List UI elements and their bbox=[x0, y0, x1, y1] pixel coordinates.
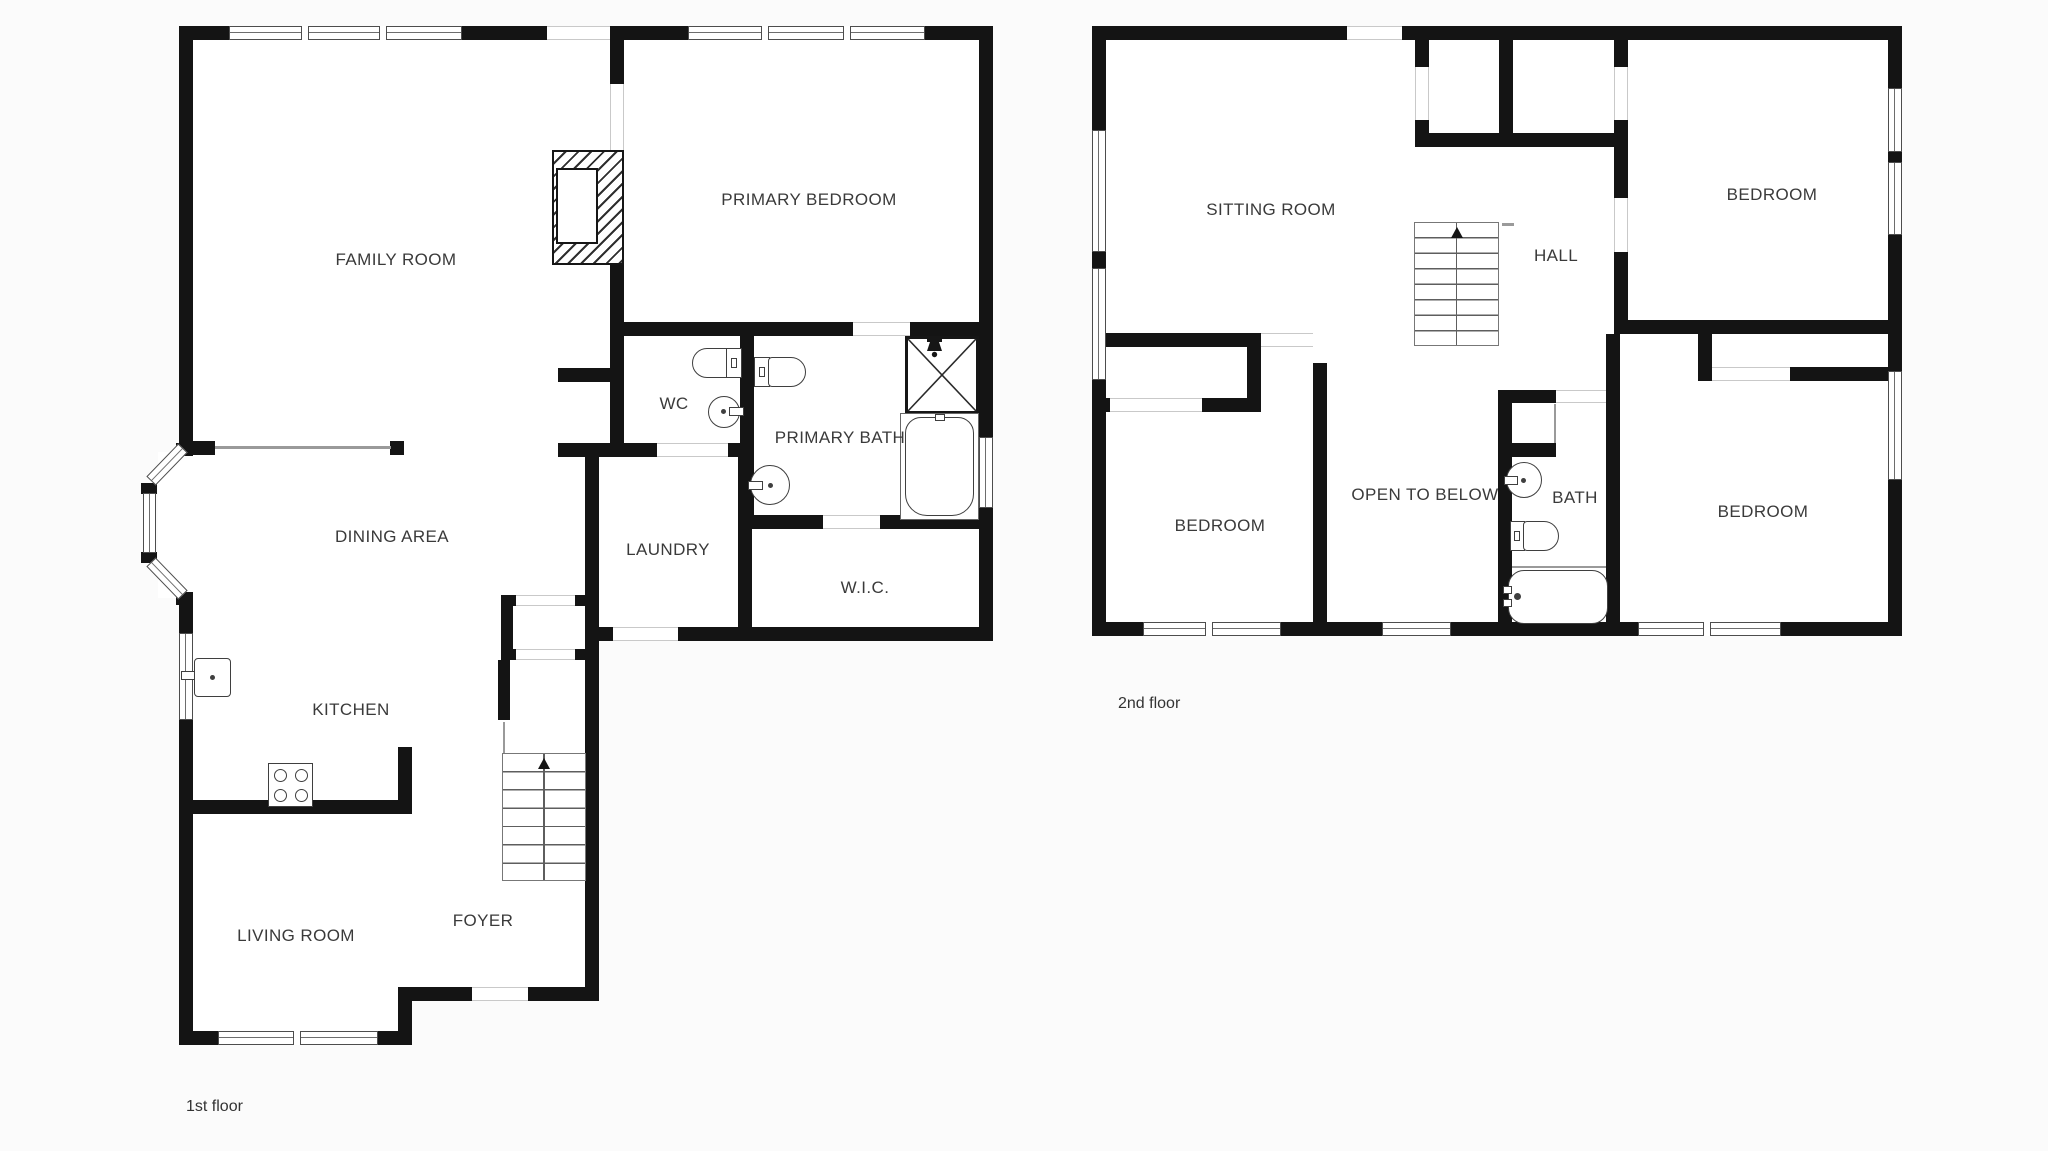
bay-window bbox=[143, 493, 156, 553]
wall bbox=[501, 649, 516, 660]
burner-icon bbox=[295, 769, 308, 782]
room-label-wic: W.I.C. bbox=[841, 578, 890, 598]
stair-center-line bbox=[1456, 223, 1457, 345]
door-opening bbox=[516, 595, 575, 606]
closet-line bbox=[1554, 404, 1556, 443]
wall bbox=[1614, 120, 1628, 133]
room-label-laundry: LAUNDRY bbox=[626, 540, 710, 560]
stove-icon bbox=[268, 763, 313, 807]
wall bbox=[624, 322, 853, 336]
room-label-bath: BATH bbox=[1552, 488, 1598, 508]
faucet-icon bbox=[181, 671, 195, 680]
floor-caption-first: 1st floor bbox=[186, 1098, 243, 1116]
window-mullion bbox=[301, 26, 309, 40]
bathtub-icon bbox=[905, 417, 974, 516]
wall bbox=[754, 515, 823, 529]
window-mullion bbox=[761, 26, 769, 40]
tub-line bbox=[1512, 566, 1606, 568]
toilet-bowl-icon bbox=[692, 348, 730, 378]
room-label-family-room: FAMILY ROOM bbox=[336, 250, 457, 270]
wall bbox=[575, 595, 595, 606]
wall bbox=[1313, 363, 1327, 622]
room-label-bedroom-sw: BEDROOM bbox=[1175, 516, 1266, 536]
room-area bbox=[193, 1001, 412, 1031]
stair-up-arrow-icon bbox=[1451, 227, 1463, 238]
wall bbox=[558, 443, 657, 457]
wall bbox=[1499, 40, 1513, 133]
room-label-wc: WC bbox=[659, 394, 688, 414]
faucet-icon bbox=[1504, 476, 1518, 485]
wall bbox=[1790, 367, 1902, 381]
faucet-icon bbox=[729, 407, 744, 416]
wall bbox=[1415, 120, 1429, 133]
bathtub-icon bbox=[1508, 570, 1608, 624]
wall bbox=[575, 649, 595, 660]
door-opening bbox=[657, 443, 728, 457]
passage-line bbox=[503, 722, 505, 753]
window bbox=[1888, 162, 1902, 235]
room-label-bedroom-ne: BEDROOM bbox=[1727, 185, 1818, 205]
room-label-living-room: LIVING ROOM bbox=[237, 926, 355, 946]
burner-icon bbox=[295, 789, 308, 802]
room-label-dining-area: DINING AREA bbox=[335, 527, 449, 547]
closet-door-opening bbox=[1110, 398, 1202, 412]
window bbox=[979, 437, 993, 508]
wall bbox=[1498, 443, 1556, 457]
window bbox=[229, 26, 462, 40]
staircase-up bbox=[502, 753, 586, 881]
window-mullion bbox=[1703, 622, 1711, 636]
wall bbox=[610, 40, 624, 84]
door-opening bbox=[1556, 390, 1606, 403]
wall bbox=[1092, 398, 1110, 412]
drain-dot bbox=[768, 483, 773, 488]
door-opening bbox=[516, 649, 575, 660]
door-opening bbox=[610, 84, 624, 150]
toilet-bowl-icon bbox=[768, 357, 806, 387]
wall bbox=[558, 368, 624, 382]
room-label-sitting-room: SITTING ROOM bbox=[1206, 200, 1335, 220]
tub-faucet-icon bbox=[935, 414, 945, 421]
wall bbox=[1092, 333, 1261, 347]
floor-caption-second: 2nd floor bbox=[1118, 695, 1180, 713]
wall bbox=[1092, 26, 1902, 40]
wall bbox=[1606, 334, 1620, 622]
shower-icon bbox=[905, 336, 979, 414]
toilet-button bbox=[1514, 531, 1520, 541]
window-mullion bbox=[1205, 622, 1213, 636]
room-label-open-to-below: OPEN TO BELOW bbox=[1351, 485, 1498, 505]
toilet-button bbox=[759, 367, 765, 377]
wall bbox=[1698, 367, 1712, 381]
room-label-foyer: FOYER bbox=[453, 911, 514, 931]
window-mullion bbox=[379, 26, 387, 40]
room-divider-line bbox=[215, 446, 391, 449]
staircase-down bbox=[1414, 222, 1499, 346]
wall bbox=[1247, 333, 1261, 412]
closet-door-opening bbox=[1712, 367, 1790, 381]
window-mullion bbox=[843, 26, 851, 40]
tub-faucet-icon bbox=[1503, 599, 1512, 607]
tub-knob-dot bbox=[1514, 593, 1521, 600]
wall bbox=[398, 987, 412, 1045]
wall bbox=[398, 747, 412, 814]
window bbox=[1888, 371, 1902, 480]
room-label-primary-bedroom: PRIMARY BEDROOM bbox=[721, 190, 896, 210]
wall bbox=[498, 660, 510, 720]
drain-dot bbox=[1521, 478, 1526, 483]
door-opening bbox=[853, 322, 910, 336]
front-door-opening bbox=[472, 987, 528, 1001]
stair-center-line bbox=[543, 754, 544, 880]
window bbox=[1092, 130, 1106, 252]
room-label-primary-bath: PRIMARY BATH bbox=[775, 428, 905, 448]
wall bbox=[1614, 40, 1628, 67]
wall bbox=[910, 322, 993, 336]
wall bbox=[1202, 398, 1247, 412]
door-opening bbox=[1614, 198, 1628, 252]
room-label-kitchen: KITCHEN bbox=[312, 700, 389, 720]
drain-dot bbox=[210, 675, 215, 680]
window bbox=[1888, 88, 1902, 152]
opening bbox=[547, 26, 610, 40]
window bbox=[1382, 622, 1451, 636]
opening bbox=[1347, 26, 1402, 40]
door-opening bbox=[823, 515, 880, 529]
drain-dot bbox=[721, 409, 726, 414]
window bbox=[688, 26, 925, 40]
closet-door-opening bbox=[1415, 67, 1429, 120]
toilet-bowl-icon bbox=[1523, 521, 1559, 551]
floor-plan-canvas: FAMILY ROOM PRIMARY BEDROOM WC PRIMARY B… bbox=[0, 0, 2048, 1151]
window-mullion bbox=[293, 1031, 301, 1045]
wall bbox=[1614, 320, 1902, 334]
door-opening bbox=[1261, 333, 1313, 347]
fireplace-firebox bbox=[556, 168, 598, 244]
window bbox=[1092, 268, 1106, 380]
wall-post bbox=[390, 441, 404, 455]
wall bbox=[1614, 147, 1628, 198]
closet-door-opening bbox=[1614, 67, 1628, 120]
wall bbox=[585, 443, 599, 1001]
stair-up-arrow-icon bbox=[538, 758, 550, 769]
tub-faucet-icon bbox=[1503, 586, 1512, 594]
wall bbox=[179, 26, 193, 444]
wall bbox=[1498, 390, 1556, 403]
burner-icon bbox=[274, 769, 287, 782]
wall bbox=[1415, 40, 1429, 67]
toilet-button bbox=[731, 358, 737, 368]
wall bbox=[1415, 133, 1628, 147]
room-label-bedroom-se: BEDROOM bbox=[1718, 502, 1809, 522]
room-label-hall: HALL bbox=[1534, 246, 1578, 266]
door-opening bbox=[613, 627, 678, 641]
wall bbox=[193, 441, 215, 455]
burner-icon bbox=[274, 789, 287, 802]
stair-edge-line bbox=[1502, 223, 1514, 226]
faucet-icon bbox=[748, 481, 763, 490]
